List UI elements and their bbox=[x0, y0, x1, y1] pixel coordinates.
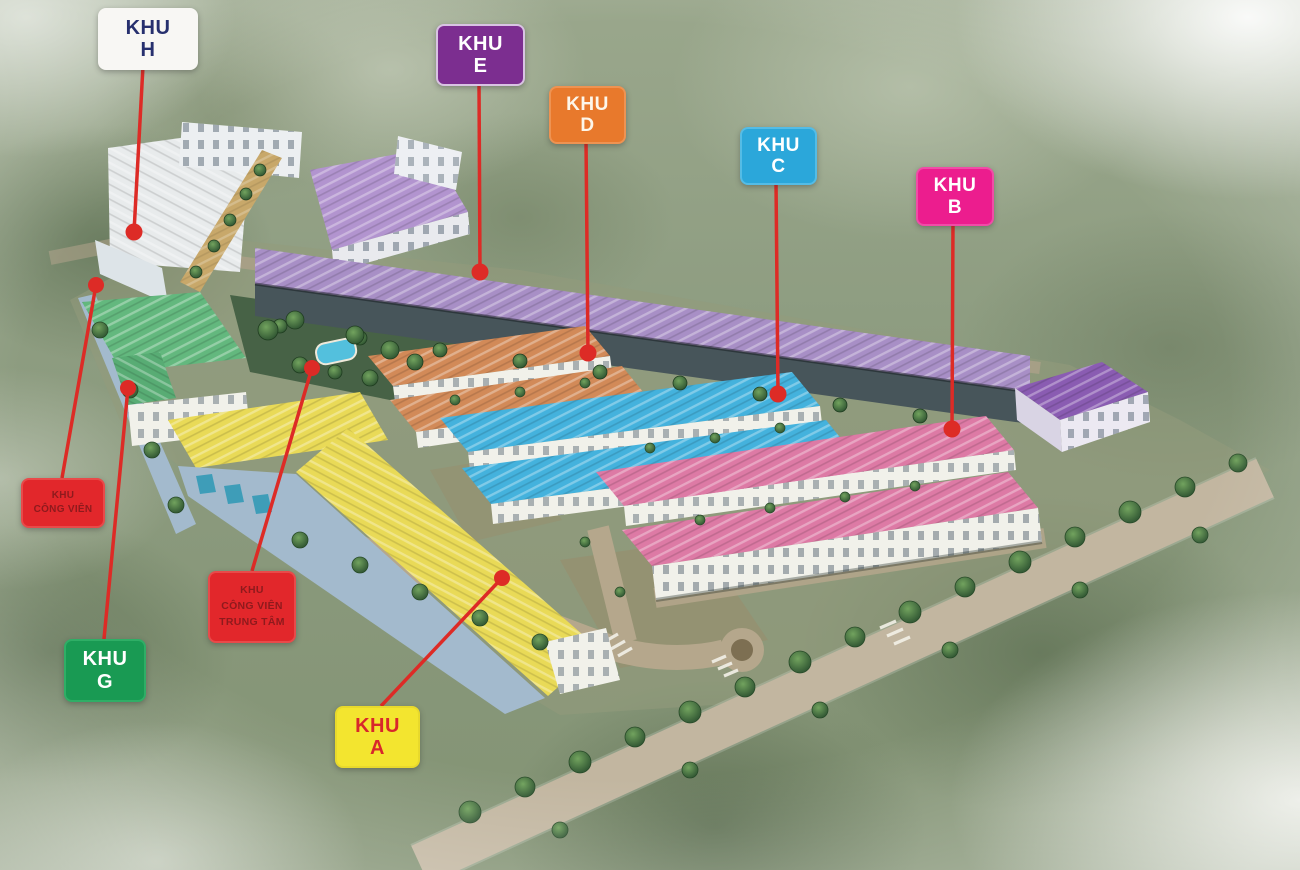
zone-label-line: E bbox=[474, 55, 488, 77]
zone-label-line: KHU bbox=[566, 94, 609, 115]
zone-label-khu-g: KHU G bbox=[64, 639, 146, 702]
master-plan-image: KHU H KHU E KHU D KHU C KHU B KHU CÔNG V… bbox=[0, 0, 1300, 870]
zone-label-khu-a: KHU A bbox=[335, 706, 420, 768]
zone-label-khu-d: KHU D bbox=[549, 86, 626, 144]
zone-label-line: KHU bbox=[757, 135, 800, 156]
zone-label-khu-cong-vien-trung-tam: KHU CÔNG VIÊN TRUNG TÂM bbox=[208, 571, 296, 643]
zone-label-line: KHU bbox=[240, 583, 264, 599]
zone-label-line: KHU bbox=[355, 715, 400, 737]
zone-label-line: D bbox=[580, 115, 594, 136]
zone-label-line: KHU bbox=[458, 33, 503, 55]
zone-label-khu-cong-vien: KHU CÔNG VIÊN bbox=[21, 478, 105, 528]
zone-label-khu-h: KHU H bbox=[98, 8, 198, 70]
zone-label-line: A bbox=[370, 737, 385, 759]
zone-label-line: H bbox=[141, 39, 156, 61]
roundabout-center bbox=[731, 639, 753, 661]
zone-label-khu-b: KHU B bbox=[916, 167, 994, 226]
site-plan-rendering bbox=[0, 0, 1300, 870]
zone-label-line: CÔNG VIÊN bbox=[34, 503, 93, 517]
zone-label-line: KHU bbox=[934, 175, 977, 196]
zone-label-line: B bbox=[948, 197, 962, 218]
zone-label-line: KHU bbox=[126, 17, 171, 39]
zone-label-line: C bbox=[771, 156, 785, 177]
zone-label-line: TRUNG TÂM bbox=[219, 615, 285, 631]
zone-label-line: KHU bbox=[83, 648, 128, 670]
zone-label-line: KHU bbox=[52, 489, 75, 503]
zone-label-line: G bbox=[97, 671, 113, 693]
zone-label-line: CÔNG VIÊN bbox=[221, 599, 283, 615]
big-purple-building bbox=[310, 136, 470, 272]
zone-label-khu-e: KHU E bbox=[436, 24, 525, 86]
zone-label-khu-c: KHU C bbox=[740, 127, 817, 185]
